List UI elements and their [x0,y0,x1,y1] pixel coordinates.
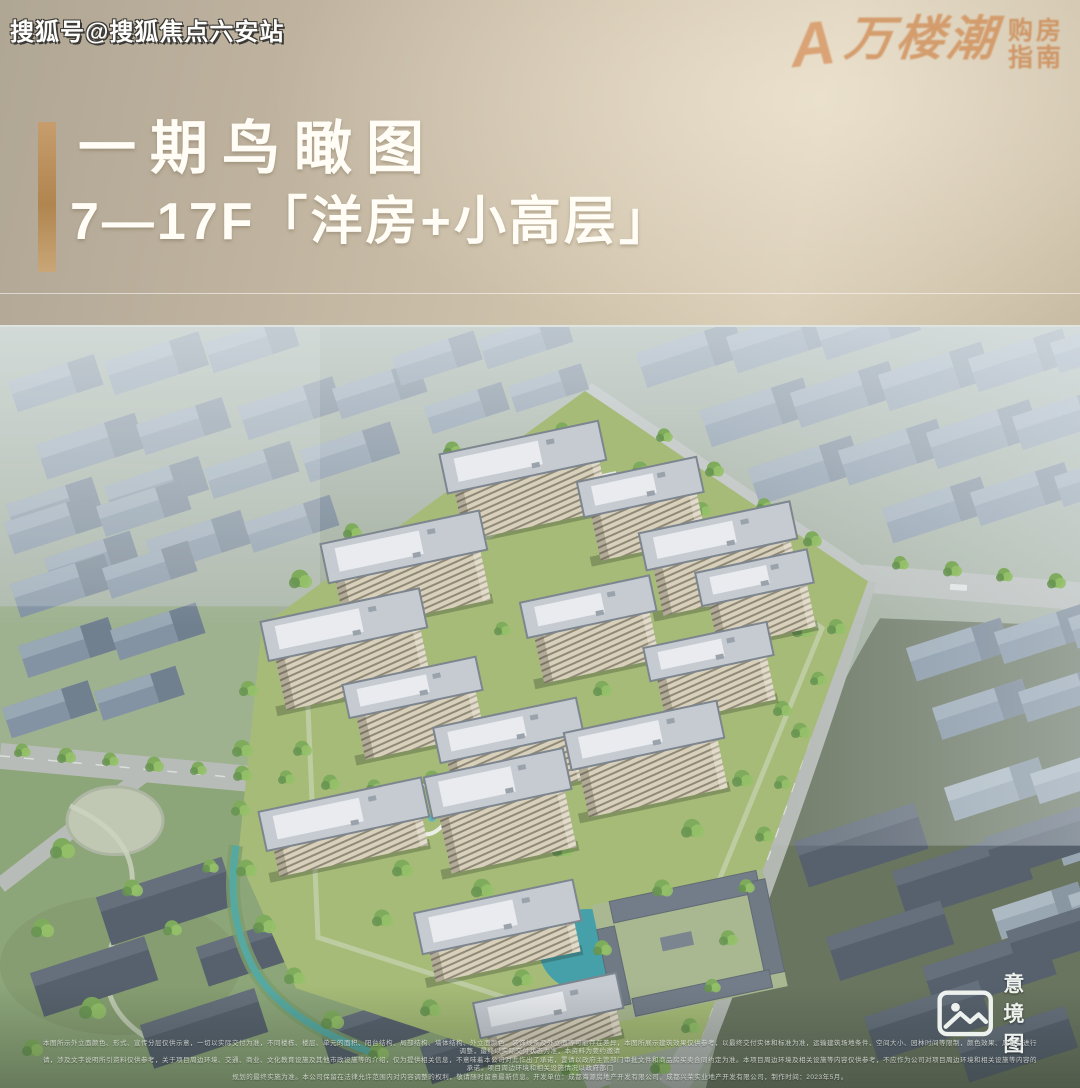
brand-glyphs: 万楼潮 [842,10,1001,70]
legal-disclaimer: 本图所示外立面颜色、形式、宣传分层仅供示意，一切以实际交付为准，不同楼栋、楼层、… [42,1040,1038,1083]
image-icon [936,989,994,1038]
header-separator [0,293,1080,294]
brand-logo: A 万楼潮 购房 指南 [790,10,1064,72]
brand-tagline-line2: 指南 [1008,45,1064,72]
disclaimer-line: 本图所示外立面颜色、形式、宣传分层仅供示意，一切以实际交付为准，不同楼栋、楼层、… [42,1040,1038,1057]
brand-tagline: 购房 指南 [1008,18,1064,72]
promo-page: 搜狐号@搜狐焦点六安站 A 万楼潮 购房 指南 一期鸟瞰图 7—17F「洋房+小… [0,0,1080,1088]
title-block: 一期鸟瞰图 7—17F「洋房+小高层」 [38,118,674,272]
gold-accent-bar [38,122,56,272]
aerial-render [0,327,1080,1088]
header-banner: 搜狐号@搜狐焦点六安站 A 万楼潮 购房 指南 一期鸟瞰图 7—17F「洋房+小… [0,0,1080,325]
page-subtitle: 7—17F「洋房+小高层」 [70,194,674,250]
disclaimer-line: 规划的最终实施为准。本公司保留在法律允许范围内对内容调整的权利，敬请随时留意最新… [42,1074,1038,1083]
sohu-watermark: 搜狐号@搜狐焦点六安站 [10,12,284,47]
page-title: 一期鸟瞰图 [78,118,674,180]
brand-tagline-line1: 购房 [1008,18,1064,45]
brand-mark-a: A [787,12,838,78]
disclaimer-line: 请，涉及文字说明所引资料仅供参考，关于项目周边环境、交通、商业、文化教育设施及其… [42,1057,1038,1074]
aerial-render-image: 意境图 本图所示外立面颜色、形式、宣传分层仅供示意，一切以实际交付为准，不同楼栋… [0,325,1080,1088]
